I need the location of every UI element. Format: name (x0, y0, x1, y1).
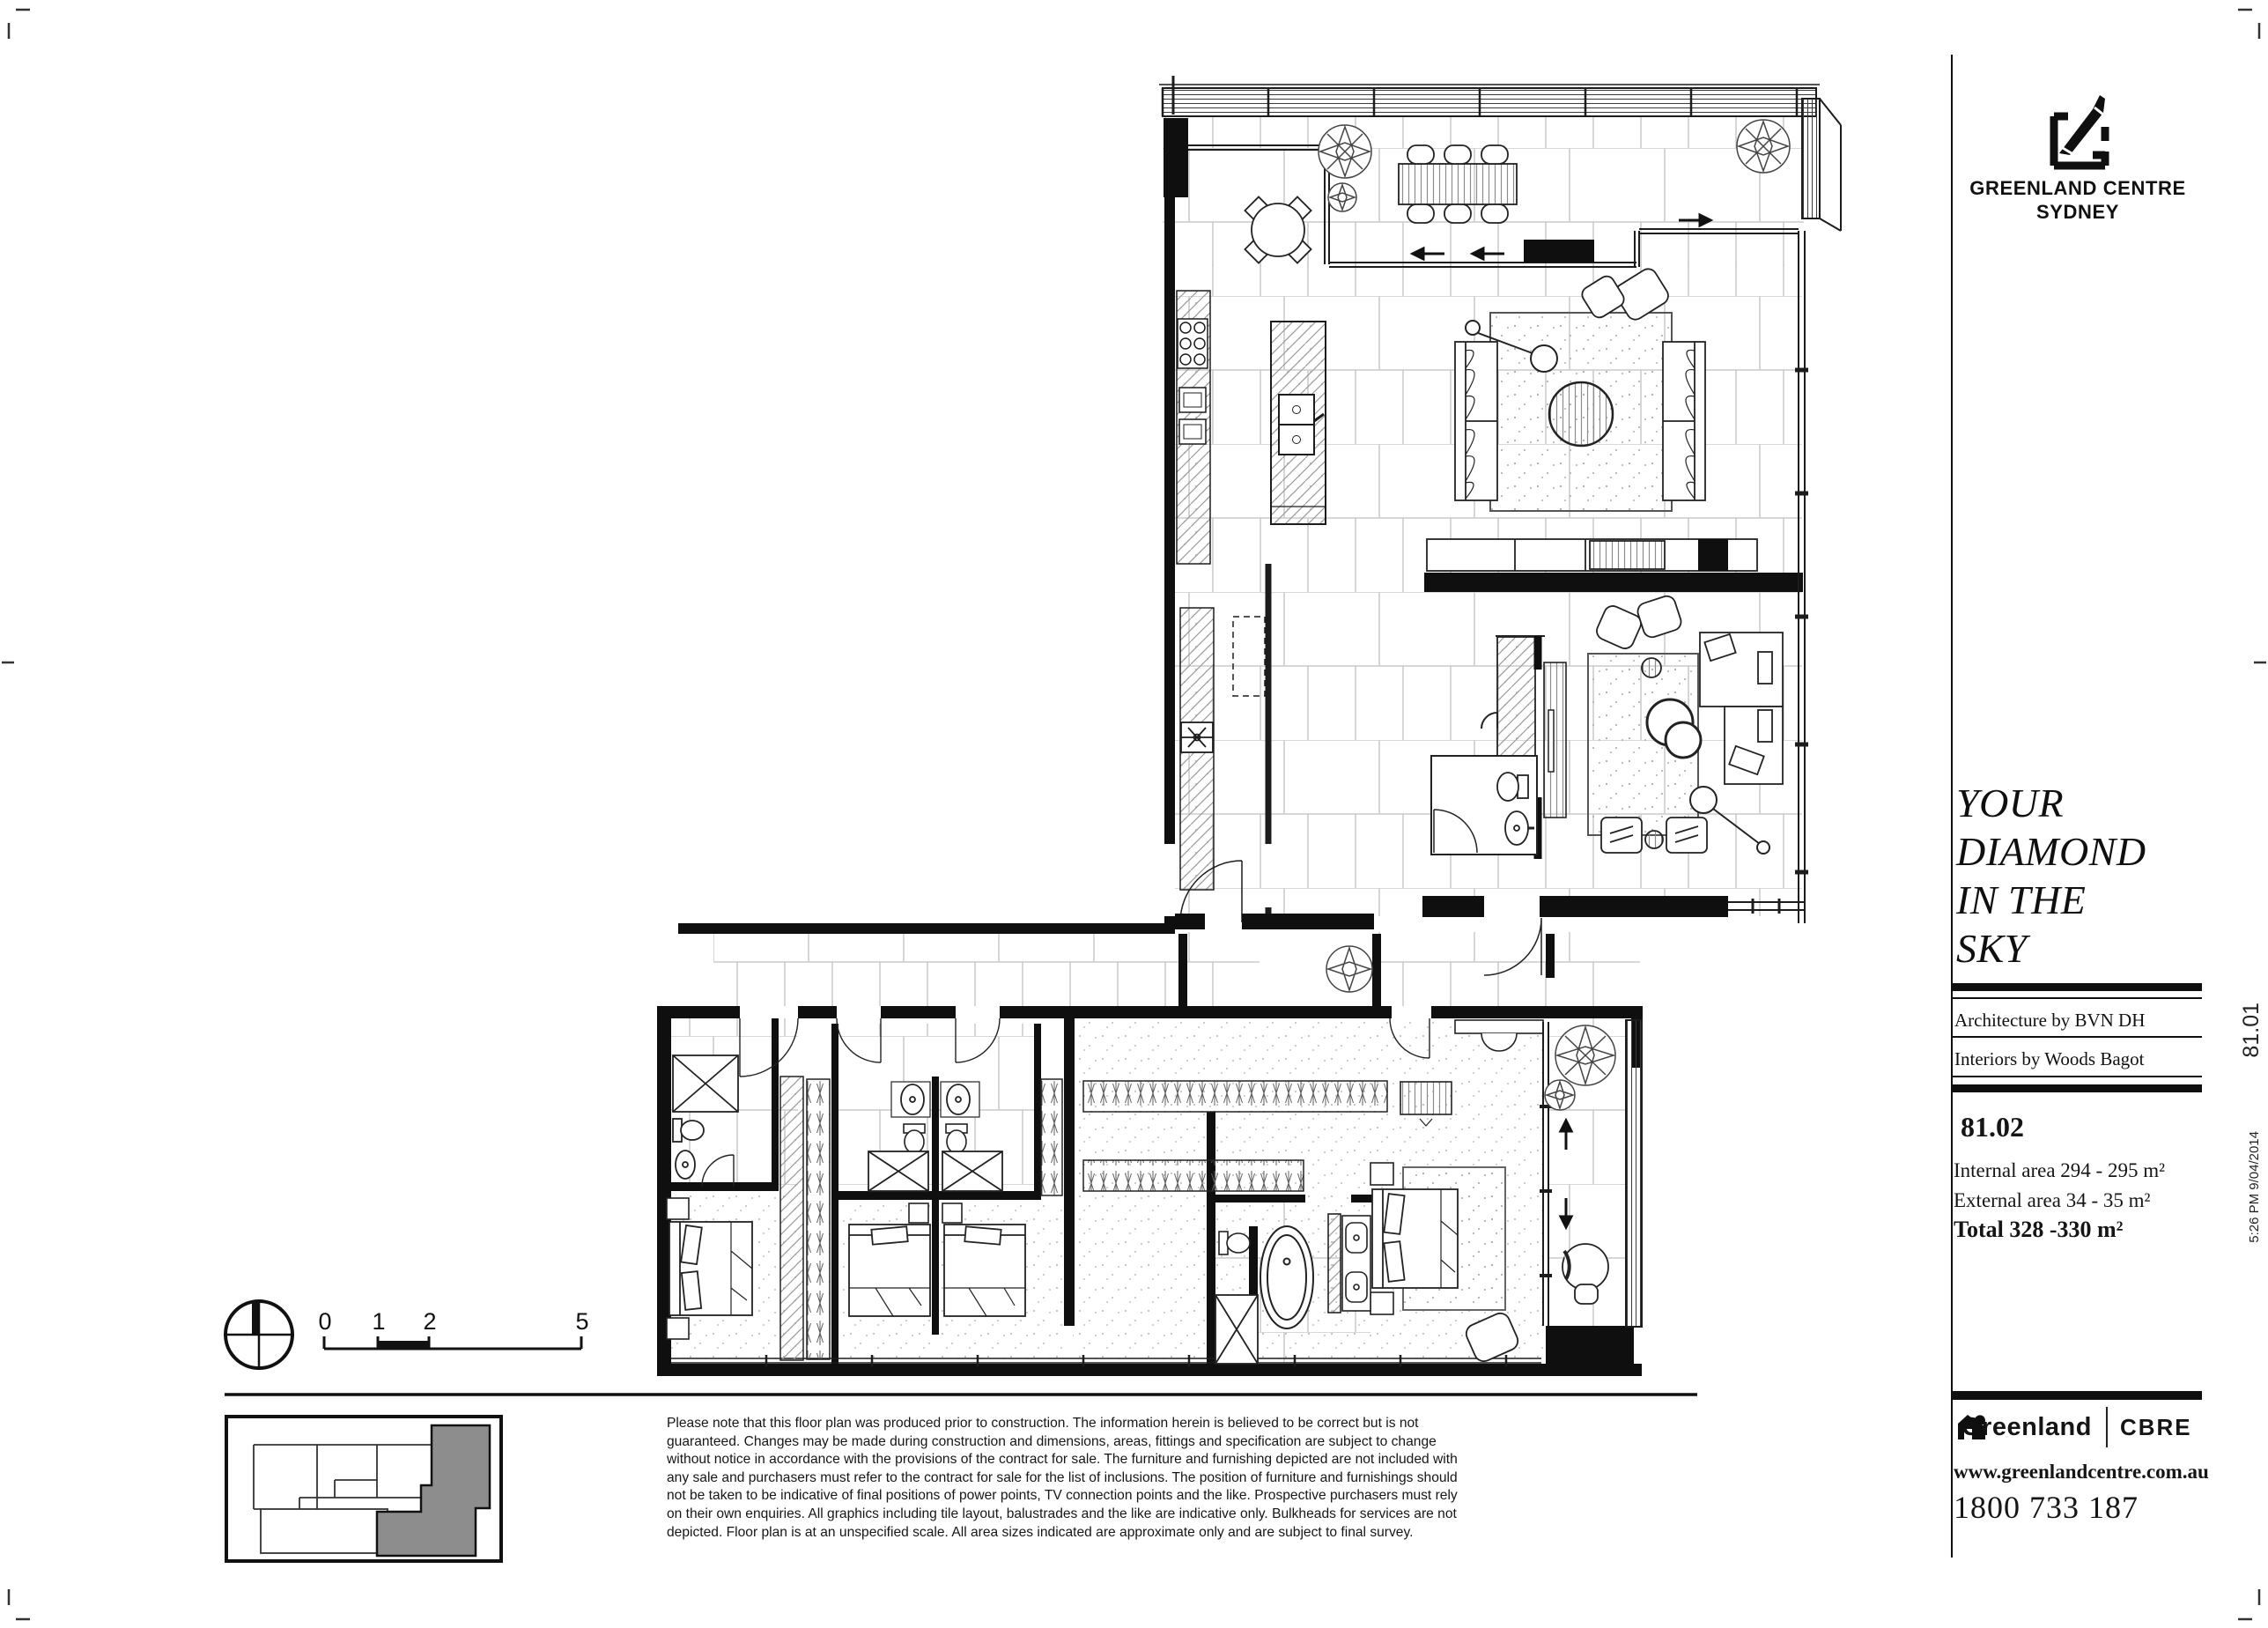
nightstand (667, 1198, 689, 1219)
rule-thick (1952, 1391, 2202, 1400)
north-arrow-icon (224, 1299, 294, 1370)
nightstand (667, 1318, 689, 1339)
floor-plan-drawing: 0 1 2 5 (0, 0, 2268, 1628)
greenland-house-icon (1954, 1408, 1990, 1443)
wardrobe (1041, 1079, 1062, 1195)
bed (944, 1225, 1025, 1316)
disclaimer-line: Please note that this floor plan was pro… (667, 1415, 1458, 1433)
coffee-table (1549, 382, 1613, 446)
disclaimer-line: depicted. Floor plan is at an unspecifie… (667, 1524, 1458, 1543)
master-hall-floor (1374, 932, 1640, 1006)
floor-plan-sheet: 0 1 2 5 GREENLAND CENTRE SYDNEY YOUR DIA… (0, 0, 2268, 1628)
total-area: Total 328 -330 m² (1954, 1217, 2123, 1243)
rule-thin (1952, 1076, 2202, 1077)
internal-area: Internal area 294 - 295 m² (1954, 1159, 2165, 1182)
hall-floor (713, 932, 1260, 1006)
interiors-credit: Interiors by Woods Bagot (1954, 1048, 2201, 1070)
panel-divider (1951, 55, 1953, 1558)
double-vanity (1328, 1214, 1370, 1313)
scale-bar: 0 1 2 5 (318, 1308, 588, 1349)
plant-icon (1737, 120, 1790, 173)
brand-name: GREENLAND CENTRE (1952, 177, 2204, 200)
tagline-line: IN THE (1956, 876, 2146, 924)
terrace-railing (1163, 88, 1816, 116)
tagline-line: SKY (1956, 924, 2146, 973)
scale-label-2: 2 (423, 1308, 436, 1335)
shower (1215, 1295, 1258, 1364)
tagline: YOUR DIAMOND IN THE SKY (1956, 779, 2146, 973)
corridor-north-wall (678, 923, 1175, 934)
print-timestamp: 5:26 PM 9/04/2014 (2247, 1131, 2262, 1243)
wardrobe (807, 1079, 830, 1359)
disclaimer-line: guaranteed. Changes may be made during c… (667, 1433, 1458, 1452)
sliding-tv-panel (1524, 240, 1594, 263)
tagline-line: DIAMOND (1956, 827, 2146, 876)
website-url: www.greenlandcentre.com.au (1954, 1461, 2209, 1484)
kitchen-island (1271, 322, 1326, 524)
toilet (1497, 773, 1528, 801)
walk-in-robe (1083, 1160, 1304, 1191)
tagline-line: YOUR (1956, 779, 2146, 827)
rule-thin (1952, 1036, 2202, 1038)
disclaimer: Please note that this floor plan was pro… (667, 1415, 1458, 1542)
scale-label-5: 5 (575, 1308, 588, 1335)
basin (891, 1082, 930, 1117)
toilet (673, 1119, 704, 1142)
toilet (1219, 1232, 1250, 1254)
tv-wall-panel (1544, 662, 1566, 818)
joinery-wall (780, 1077, 803, 1360)
plant-icon (1319, 125, 1371, 178)
plant-icon (1326, 946, 1372, 992)
sofa (1663, 342, 1705, 500)
rule-thick (1952, 983, 2202, 991)
bathtub (1260, 1226, 1313, 1328)
powder-room (1431, 756, 1537, 855)
nightstand (1370, 1163, 1393, 1185)
shower (673, 1055, 738, 1112)
laundry-sink (1181, 722, 1213, 752)
plant-icon (1328, 183, 1356, 211)
disclaimer-line: without notice in accordance with the pr… (667, 1451, 1458, 1469)
registration-marks (2, 10, 2266, 1619)
basin (941, 1082, 979, 1117)
nightstand (909, 1203, 928, 1223)
disclaimer-line: on their own enquiries. All graphics inc… (667, 1506, 1458, 1524)
bed (849, 1225, 930, 1316)
unit-number: 81.02 (1961, 1111, 2024, 1143)
architecture-credit: Architecture by BVN DH (1954, 1010, 2201, 1032)
balcony-glazing (1543, 1022, 1548, 1326)
nightstand (1370, 1292, 1393, 1314)
bed (669, 1222, 752, 1315)
walk-in-robe (1083, 1081, 1387, 1112)
joinery-unit (1497, 637, 1535, 758)
nightstand (942, 1203, 962, 1223)
outdoor-dining-set (1399, 145, 1517, 223)
round-table-set (1245, 196, 1311, 263)
agency-lockup: Greenland CBRE (1954, 1408, 2192, 1447)
basin (676, 1151, 695, 1179)
terrace-railing-return (1802, 99, 1820, 218)
cooktop (1178, 319, 1208, 368)
apartment-plan (657, 76, 1841, 1376)
rule-thick (1952, 1084, 2202, 1092)
sofa (1455, 342, 1497, 500)
external-area: External area 34 - 35 m² (1954, 1189, 2150, 1212)
rule-thin (1952, 997, 2202, 999)
tv-screen (1548, 710, 1554, 772)
sideboard (1427, 539, 1757, 571)
disclaimer-line: not be taken to be indicative of final p… (667, 1487, 1458, 1506)
greenland-centre-logo-icon (2042, 90, 2117, 174)
brand-city: SYDNEY (1952, 201, 2204, 224)
sheet-reference: 81.01 (2239, 1003, 2264, 1058)
disclaimer-line: any sale and purchasers must refer to th… (667, 1469, 1458, 1488)
scale-label-1: 1 (372, 1308, 385, 1335)
key-plan (226, 1417, 501, 1561)
scale-label-0: 0 (318, 1308, 331, 1335)
lockup-divider (2106, 1407, 2108, 1447)
cbre-wordmark: CBRE (2120, 1414, 2192, 1441)
phone-number: 1800 733 187 (1954, 1489, 2139, 1526)
balcony-railing (1626, 1020, 1642, 1327)
feature-wall (1424, 573, 1803, 592)
